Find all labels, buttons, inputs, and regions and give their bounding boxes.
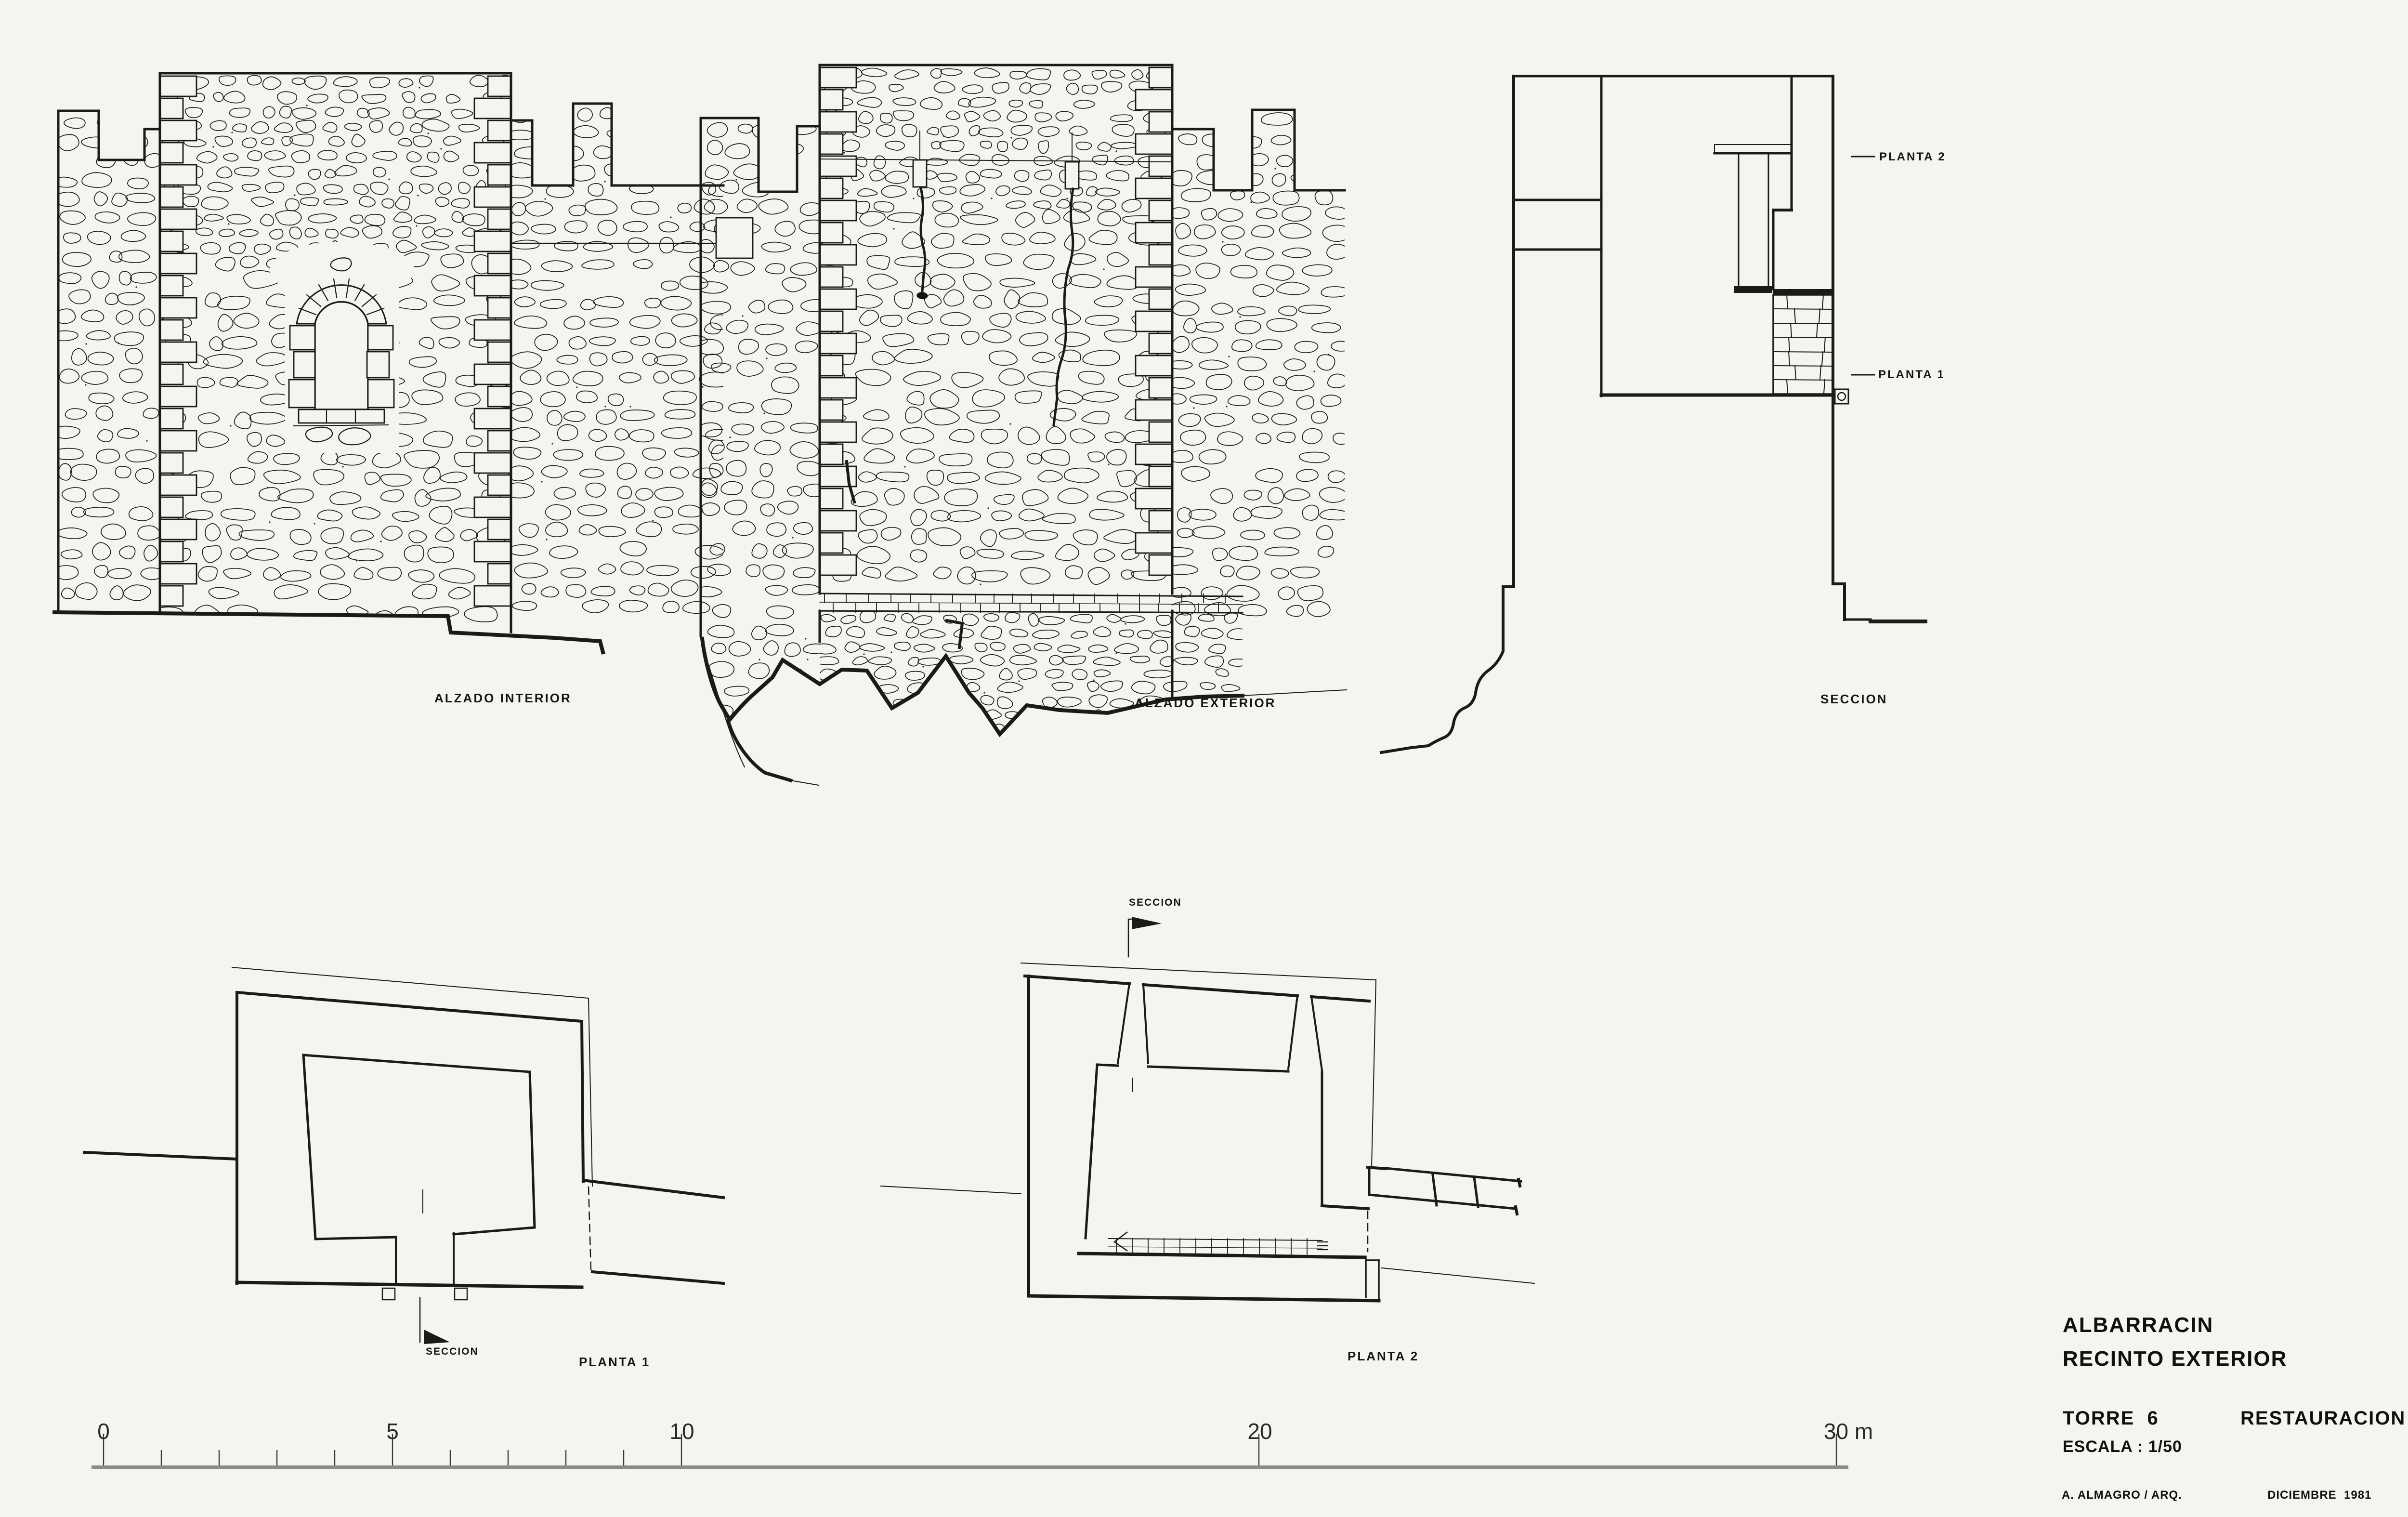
caption-planta-1: PLANTA 1 <box>579 1355 650 1370</box>
scale-bar <box>92 1434 1848 1469</box>
caption-planta-2: PLANTA 2 <box>1348 1349 1419 1364</box>
title-date: DICIEMBRE 1981 <box>2267 1489 2371 1502</box>
planta-1-drawing <box>84 967 723 1344</box>
title-project-type: RESTAURACION <box>2240 1408 2406 1429</box>
scale-label-10: 10 <box>669 1418 694 1444</box>
section-cut-label-planta-1: SECCION <box>426 1346 479 1358</box>
title-site: ALBARRACIN <box>2063 1313 2213 1337</box>
section-ref-planta-2: PLANTA 2 <box>1879 150 1946 164</box>
scale-label-20: 20 <box>1247 1418 1272 1444</box>
section-ref-planta-1: PLANTA 1 <box>1878 368 1945 382</box>
caption-alzado-exterior: ALZADO EXTERIOR <box>1135 696 1276 711</box>
title-scale: ESCALA : 1/50 <box>2063 1438 2182 1456</box>
drawing-sheet: ALZADO INTERIOR ALZADO EXTERIOR SECCION … <box>0 0 2408 1517</box>
alzado-exterior-drawing <box>695 65 1361 785</box>
seccion-drawing <box>1381 76 1925 752</box>
scale-label-5: 5 <box>386 1418 399 1444</box>
title-element: TORRE 6 <box>2063 1408 2159 1429</box>
caption-alzado-interior: ALZADO INTERIOR <box>434 691 572 706</box>
architectural-drawing-canvas <box>0 0 2408 1517</box>
planta-2-drawing <box>881 917 1534 1301</box>
title-architect: A. ALMAGRO / ARQ. <box>2062 1489 2182 1502</box>
title-area: RECINTO EXTERIOR <box>2063 1347 2287 1371</box>
caption-seccion: SECCION <box>1820 692 1887 707</box>
scale-label-30m: 30 m <box>1824 1418 1873 1444</box>
alzado-interior-drawing <box>52 73 733 652</box>
section-cut-label-planta-2: SECCION <box>1129 897 1182 909</box>
scale-label-0: 0 <box>97 1418 110 1444</box>
